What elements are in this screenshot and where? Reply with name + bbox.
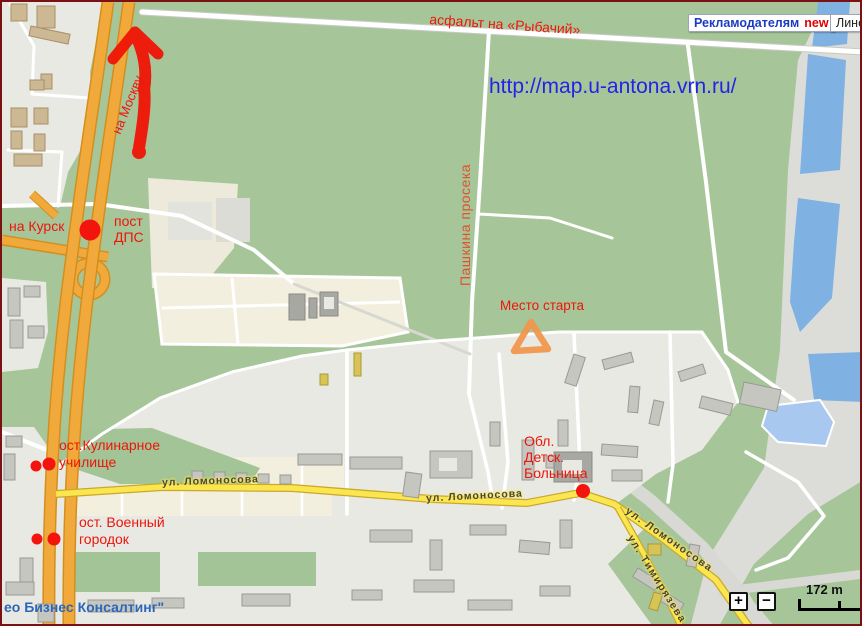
label-detskaya-bolnitsa-line1: Обл. (524, 433, 554, 449)
kulinarnoe-stop-dot-2 (43, 458, 56, 471)
label-stop-voenny-line2: городок (79, 531, 129, 547)
label-stop-kulinarnoe: ост.Кулинарноеучилище (59, 437, 160, 471)
label-detskaya-bolnitsa: Обл.Детск.Больница (524, 433, 588, 481)
scale-bar (798, 599, 862, 611)
label-post-dps-line1: пост (114, 213, 143, 229)
voenny-stop-dot-2 (48, 533, 61, 546)
logo-geo-business-consulting: ео Бизнес Консалтинг" (4, 599, 164, 615)
zoom-in-button[interactable]: + (729, 592, 748, 611)
label-pashkina-proseka: Пашкина просека (457, 156, 473, 294)
label-post-dps: постДПС (114, 213, 144, 245)
kulinarnoe-stop-dot-1 (31, 461, 42, 472)
label-na-kursk: на Курск (9, 218, 64, 234)
label-stop-voenny: ост. Военныйгородок (79, 514, 165, 548)
url-watermark: http://map.u-antona.vrn.ru/ (489, 79, 736, 95)
label-stop-kulinarnoe-line1: ост.Кулинарное (59, 437, 160, 453)
advertisers-link[interactable]: Рекламодателямnew (688, 14, 835, 32)
label-stop-kulinarnoe-line2: училище (59, 454, 116, 470)
label-stop-voenny-line1: ост. Военный (79, 514, 165, 530)
label-mesto-starta: Место старта (500, 298, 584, 314)
label-detskaya-bolnitsa-line2: Детск. (524, 449, 564, 465)
zoom-out-button[interactable]: − (757, 592, 776, 611)
scale-label: 172 m (806, 582, 843, 597)
label-detskaya-bolnitsa-line3: Больница (524, 465, 588, 481)
ruler-tool-button[interactable]: Линей (830, 14, 862, 32)
bolnitsa-dot-marker (576, 484, 590, 498)
map-viewport[interactable]: асфальт на «Рыбачий» на Москву на Курск … (0, 0, 862, 626)
scale-bar-tick (838, 601, 841, 609)
advertisers-label: Рекламодателям (694, 16, 799, 30)
new-badge: new (804, 16, 828, 30)
label-post-dps-line2: ДПС (114, 229, 144, 245)
voenny-stop-dot-1 (32, 534, 43, 545)
dps-dot-marker (80, 220, 101, 241)
